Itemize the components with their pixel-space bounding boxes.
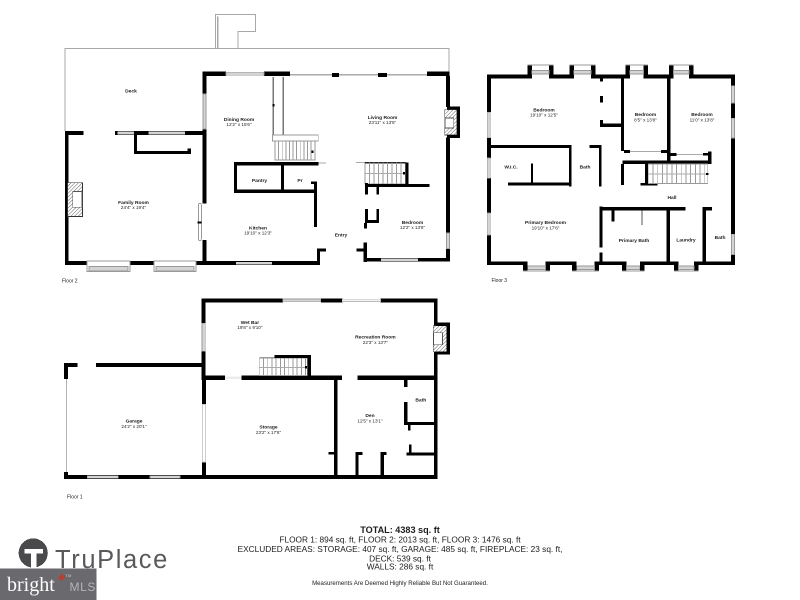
svg-text:Floor 1: Floor 1	[67, 494, 83, 500]
svg-text:W.I.C.: W.I.C.	[504, 165, 518, 171]
svg-text:Entry: Entry	[335, 233, 348, 239]
svg-text:Primary Bath: Primary Bath	[619, 238, 649, 244]
svg-text:MLS: MLS	[70, 580, 96, 594]
svg-text:Pr: Pr	[297, 178, 302, 184]
svg-text:19'10" x 12'5": 19'10" x 12'5"	[530, 113, 558, 118]
svg-text:23'2" x 17'6": 23'2" x 17'6"	[256, 430, 282, 435]
svg-text:FLOOR 1: 894 sq. ft, FLOOR 2:: FLOOR 1: 894 sq. ft, FLOOR 2: 2013 sq. f…	[279, 534, 521, 544]
svg-text:Floor 3: Floor 3	[492, 278, 508, 284]
svg-text:12'5" x 13'1": 12'5" x 13'1"	[357, 418, 383, 423]
svg-text:19'10" x 12'3": 19'10" x 12'3"	[244, 231, 272, 236]
svg-text:Deck: Deck	[125, 89, 137, 95]
svg-text:12'2" x 15'6": 12'2" x 15'6"	[226, 122, 252, 127]
svg-text:Floor 2: Floor 2	[62, 279, 78, 285]
svg-text:24'4" x 19'4": 24'4" x 19'4"	[121, 205, 147, 210]
svg-text:WALLS: 286 sq. ft: WALLS: 286 sq. ft	[367, 561, 434, 571]
svg-text:Pantry: Pantry	[252, 178, 268, 184]
svg-text:Laundry: Laundry	[676, 238, 696, 244]
svg-text:8'5" x 13'8": 8'5" x 13'8"	[634, 117, 657, 122]
svg-text:19'10" x 17'6": 19'10" x 17'6"	[532, 226, 560, 231]
svg-text:Bath: Bath	[415, 398, 426, 404]
svg-text:TM: TM	[66, 573, 72, 578]
svg-text:12'2" x 13'6": 12'2" x 13'6"	[400, 225, 426, 230]
svg-text:19'8" x 9'10": 19'8" x 9'10"	[237, 325, 263, 330]
svg-text:Bath: Bath	[580, 165, 591, 171]
svg-text:24'2" x 20'1": 24'2" x 20'1"	[121, 424, 147, 429]
svg-text:bright: bright	[7, 574, 55, 596]
svg-text:Hall: Hall	[668, 195, 678, 201]
svg-text:23'11" x 13'5": 23'11" x 13'5"	[369, 120, 397, 125]
svg-text:Bath: Bath	[715, 235, 726, 241]
svg-text:22'3" x 13'7": 22'3" x 13'7"	[363, 340, 389, 345]
svg-text:Measurements Are Deemed Highly: Measurements Are Deemed Highly Reliable …	[312, 580, 488, 587]
svg-text:EXCLUDED AREAS: STORAGE: 407 s: EXCLUDED AREAS: STORAGE: 407 sq. ft, GAR…	[238, 544, 563, 554]
svg-text:11'0" x 13'8": 11'0" x 13'8"	[690, 117, 715, 122]
